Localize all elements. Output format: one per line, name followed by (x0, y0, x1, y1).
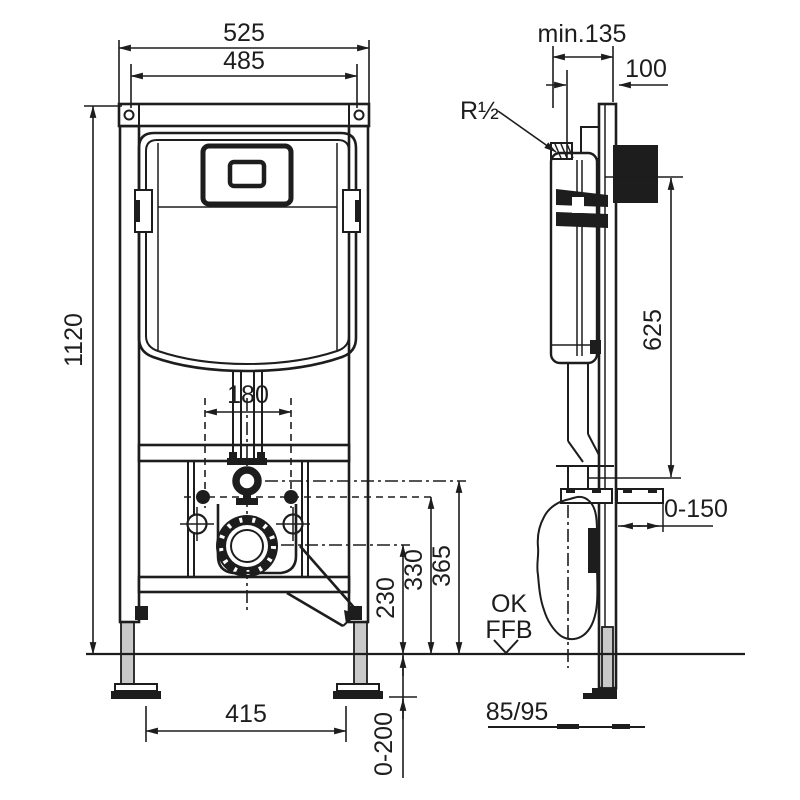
label-water-supply-thread: R½ (460, 97, 499, 125)
side-foot-tube (602, 627, 613, 688)
flush-elbow-flange (227, 458, 267, 465)
dim-outlet-center-height: 230 (372, 577, 400, 619)
label-floor-ok: OK (491, 590, 527, 618)
dim-inner-width: 485 (223, 47, 265, 75)
dim-wall-bracket-height: 625 (639, 309, 667, 351)
technical-drawing-page: 525 485 1120 180 230 330 365 415 (0, 0, 800, 800)
flush-elbow-connector (236, 470, 258, 492)
fixing-bolt-left (196, 490, 210, 504)
cistern-profile (551, 153, 597, 363)
side-foot-plate (592, 688, 617, 699)
right-foot-plate (333, 691, 383, 699)
top-rail (119, 104, 369, 126)
water-supply-leader (498, 111, 556, 152)
lower-cross-rail (139, 577, 349, 592)
fixing-bolt-right (284, 490, 298, 504)
technical-drawing: 525 485 1120 180 230 330 365 415 (0, 0, 800, 800)
left-foot-plate (111, 691, 161, 699)
wall-bracket-jaw-lower (556, 212, 608, 228)
side-view: min.135 100 R½ 625 0-150 OK FFB 85/95 (460, 20, 728, 729)
dim-frame-height: 1120 (60, 313, 88, 367)
label-floor-ffb: FFB (485, 616, 532, 644)
dim-flush-elbow-height: 365 (428, 545, 456, 587)
dim-foot-spacing: 415 (225, 700, 267, 728)
dim-fixing-bolt-height: 330 (400, 549, 428, 591)
dim-flush-pipe-spacing: 180 (227, 381, 269, 409)
left-leg-clamp (135, 606, 148, 620)
cistern (135, 133, 360, 371)
dim-min-installation-depth: min.135 (538, 20, 627, 48)
adjustable-feet (121, 600, 367, 690)
flush-opening-slot (230, 162, 264, 186)
dim-top-offset: 100 (625, 55, 667, 83)
dim-outlet-pipe-diameter: 85/95 (486, 698, 549, 726)
dim-bracket-depth-adjustment: 0-150 (664, 495, 728, 523)
front-view: 525 485 1120 180 230 330 365 415 (60, 19, 466, 778)
wall-anchor-block (613, 145, 658, 203)
dim-foot-height-adjustment: 0-200 (370, 712, 398, 776)
dim-overall-width: 525 (223, 19, 265, 47)
